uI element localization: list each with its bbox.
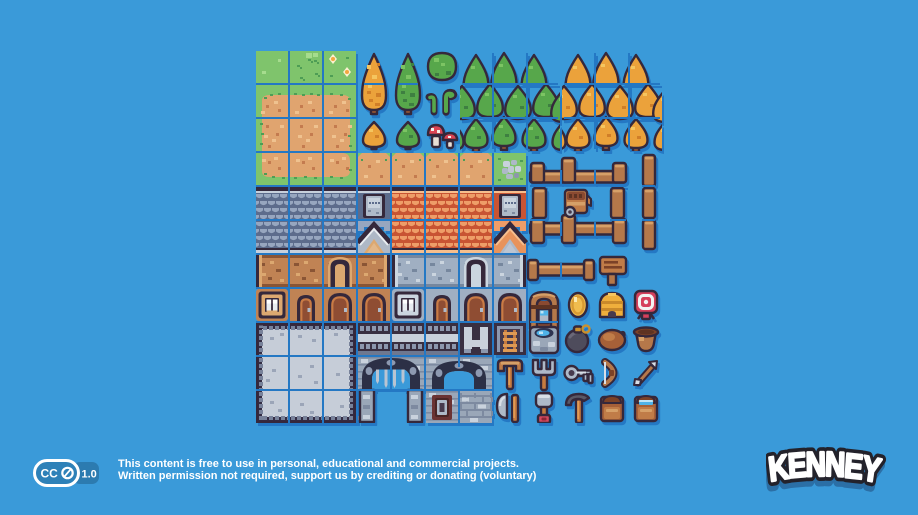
svg-text:CC: CC [41, 467, 59, 481]
svg-text:1.0: 1.0 [82, 469, 97, 481]
svg-text:N: N [825, 445, 846, 484]
svg-text:N: N [805, 445, 826, 484]
svg-text:E: E [787, 445, 808, 485]
